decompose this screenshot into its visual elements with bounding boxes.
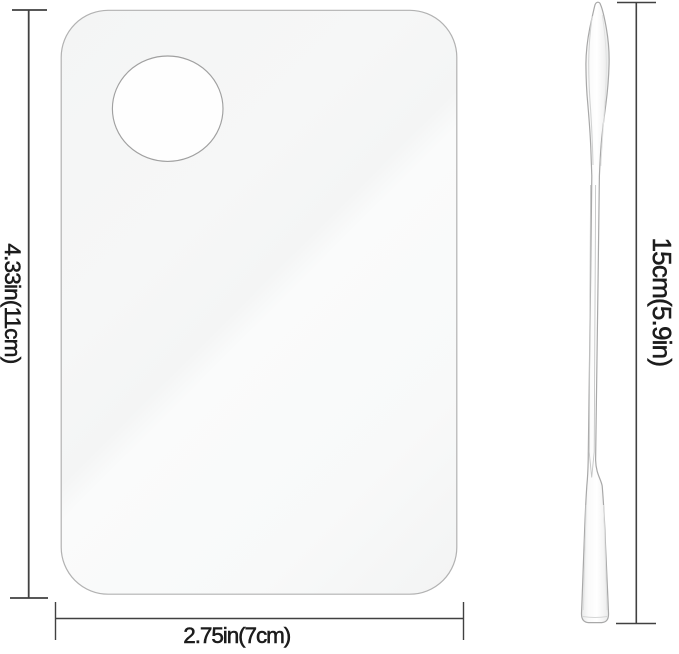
svg-text:2.75in(7cm): 2.75in(7cm) bbox=[183, 623, 291, 648]
svg-text:4.33in(11cm): 4.33in(11cm) bbox=[0, 243, 25, 364]
svg-text:15cm(5.9in): 15cm(5.9in) bbox=[647, 238, 677, 368]
